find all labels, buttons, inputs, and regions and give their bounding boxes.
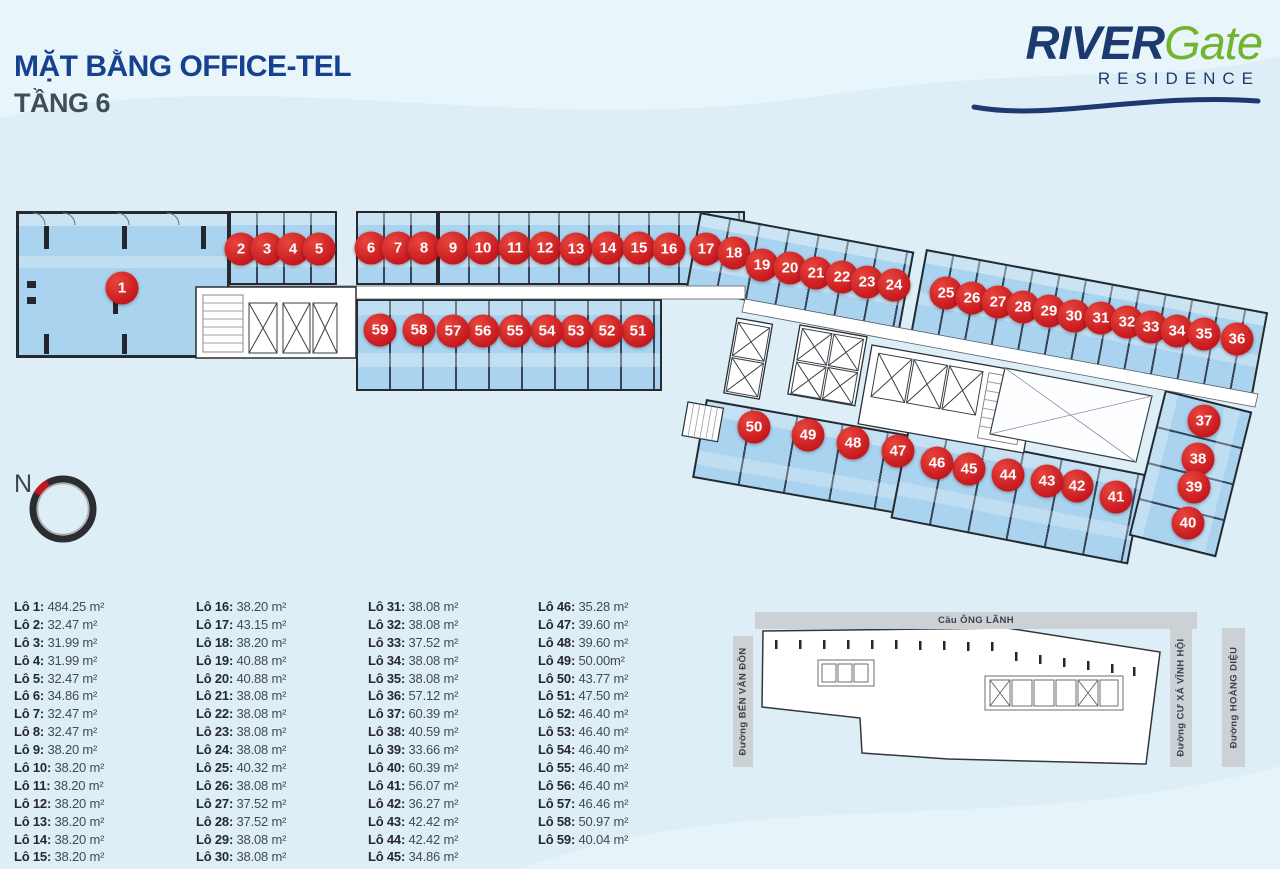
utility-room <box>682 402 723 442</box>
legend-row-lot-32: Lô 32: 38.08 m² <box>368 616 458 634</box>
legend-row-lot-37: Lô 37: 60.39 m² <box>368 705 458 723</box>
compass-north-label: N <box>14 470 32 499</box>
legend-row-lot-59: Lô 59: 40.04 m² <box>538 831 628 849</box>
legend-row-lot-29: Lô 29: 38.08 m² <box>196 831 286 849</box>
legend-column-4: Lô 46: 35.28 m²Lô 47: 39.60 m²Lô 48: 39.… <box>538 598 628 848</box>
lot-marker-59[interactable]: 59 <box>364 314 397 347</box>
lot-marker-45[interactable]: 45 <box>953 453 986 486</box>
legend-row-lot-21: Lô 21: 38.08 m² <box>196 687 286 705</box>
legend-row-lot-34: Lô 34: 38.08 m² <box>368 652 458 670</box>
legend-row-lot-44: Lô 44: 42.42 m² <box>368 831 458 849</box>
legend-row-lot-2: Lô 2: 32.47 m² <box>14 616 104 634</box>
legend-row-lot-50: Lô 50: 43.77 m² <box>538 670 628 688</box>
lot-marker-11[interactable]: 11 <box>499 232 532 265</box>
lot-marker-50[interactable]: 50 <box>738 411 771 444</box>
logo-residence: RESIDENCE <box>892 69 1260 89</box>
road-label: Đường CƯ XÁ VĨNH HỘI <box>1176 638 1187 756</box>
legend-row-lot-30: Lô 30: 38.08 m² <box>196 848 286 866</box>
legend-row-lot-25: Lô 25: 40.32 m² <box>196 759 286 777</box>
legend-row-lot-51: Lô 51: 47.50 m² <box>538 687 628 705</box>
legend-row-lot-53: Lô 53: 46.40 m² <box>538 723 628 741</box>
lot-marker-36[interactable]: 36 <box>1221 323 1254 356</box>
road-label: Đường BẾN VÂN ĐỒN <box>738 647 749 755</box>
legend-row-lot-54: Lô 54: 46.40 m² <box>538 741 628 759</box>
legend-row-lot-16: Lô 16: 38.20 m² <box>196 598 286 616</box>
legend-row-lot-46: Lô 46: 35.28 m² <box>538 598 628 616</box>
legend-row-lot-43: Lô 43: 42.42 m² <box>368 813 458 831</box>
lot-marker-58[interactable]: 58 <box>403 314 436 347</box>
lot-marker-39[interactable]: 39 <box>1178 471 1211 504</box>
legend-row-lot-19: Lô 19: 40.88 m² <box>196 652 286 670</box>
plan-details <box>0 0 1280 869</box>
road-bar-hoang-dieu: Đường HOÀNG DIỆU <box>1222 628 1245 767</box>
lot-marker-54[interactable]: 54 <box>531 315 564 348</box>
legend-row-lot-40: Lô 40: 60.39 m² <box>368 759 458 777</box>
lot-marker-52[interactable]: 52 <box>591 315 624 348</box>
brand-logo: RIVERGate RESIDENCE <box>892 18 1262 117</box>
minimap-footprint <box>762 628 1160 764</box>
lot-marker-56[interactable]: 56 <box>467 315 500 348</box>
legend-row-lot-27: Lô 27: 37.52 m² <box>196 795 286 813</box>
elevator-core-mid <box>724 318 773 399</box>
logo-wordmark: RIVERGate <box>892 18 1262 67</box>
lot-marker-55[interactable]: 55 <box>499 315 532 348</box>
legend-row-lot-13: Lô 13: 38.20 m² <box>14 813 104 831</box>
elevator-core-mid-2 <box>788 325 867 406</box>
lot-marker-48[interactable]: 48 <box>837 427 870 460</box>
lot-marker-12[interactable]: 12 <box>529 232 562 265</box>
compass-north-arrow-icon <box>37 483 48 494</box>
floor-subtitle: TẦNG 6 <box>14 88 351 119</box>
legend-row-lot-10: Lô 10: 38.20 m² <box>14 759 104 777</box>
road-bar-ben-van-don: Đường BẾN VÂN ĐỒN <box>733 636 753 767</box>
page: MẶT BẰNG OFFICE-TEL TẦNG 6 RIVERGate RES… <box>0 0 1280 869</box>
lot-marker-37[interactable]: 37 <box>1188 405 1221 438</box>
lot-marker-46[interactable]: 46 <box>921 447 954 480</box>
lot-marker-16[interactable]: 16 <box>653 233 686 266</box>
lot-marker-13[interactable]: 13 <box>560 233 593 266</box>
lot-marker-14[interactable]: 14 <box>592 232 625 265</box>
legend-row-lot-45: Lô 45: 34.86 m² <box>368 848 458 866</box>
header: MẶT BẰNG OFFICE-TEL TẦNG 6 <box>14 50 351 119</box>
lot-marker-1[interactable]: 1 <box>106 272 139 305</box>
compass <box>33 479 93 539</box>
legend-row-lot-38: Lô 38: 40.59 m² <box>368 723 458 741</box>
road-label: Cầu ÔNG LÃNH <box>938 615 1014 626</box>
legend-column-3: Lô 31: 38.08 m²Lô 32: 38.08 m²Lô 33: 37.… <box>368 598 458 866</box>
lot-marker-40[interactable]: 40 <box>1172 507 1205 540</box>
legend-row-lot-3: Lô 3: 31.99 m² <box>14 634 104 652</box>
legend-row-lot-9: Lô 9: 38.20 m² <box>14 741 104 759</box>
legend-row-lot-15: Lô 15: 38.20 m² <box>14 848 104 866</box>
legend-column-1: Lô 1: 484.25 m²Lô 2: 32.47 m²Lô 3: 31.99… <box>14 598 104 866</box>
road-bar-cu-xa-vinh-hoi: Đường CƯ XÁ VĨNH HỘI <box>1170 628 1192 767</box>
legend-row-lot-35: Lô 35: 38.08 m² <box>368 670 458 688</box>
legend-row-lot-58: Lô 58: 50.97 m² <box>538 813 628 831</box>
legend-row-lot-17: Lô 17: 43.15 m² <box>196 616 286 634</box>
legend-row-lot-33: Lô 33: 37.52 m² <box>368 634 458 652</box>
legend-row-lot-57: Lô 57: 46.46 m² <box>538 795 628 813</box>
stair-elevator-core-left <box>196 287 356 358</box>
logo-river: RIVER <box>1025 16 1164 69</box>
legend-row-lot-52: Lô 52: 46.40 m² <box>538 705 628 723</box>
lot-marker-43[interactable]: 43 <box>1031 465 1064 498</box>
legend-row-lot-23: Lô 23: 38.08 m² <box>196 723 286 741</box>
road-bar-cau-ong-lanh: Cầu ÔNG LÃNH <box>755 612 1197 629</box>
legend-row-lot-14: Lô 14: 38.20 m² <box>14 831 104 849</box>
logo-gate: Gate <box>1164 16 1262 69</box>
legend-row-lot-8: Lô 8: 32.47 m² <box>14 723 104 741</box>
legend-row-lot-39: Lô 39: 33.66 m² <box>368 741 458 759</box>
lot-marker-42[interactable]: 42 <box>1061 470 1094 503</box>
lot-marker-57[interactable]: 57 <box>437 315 470 348</box>
legend-row-lot-55: Lô 55: 46.40 m² <box>538 759 628 777</box>
lot-marker-15[interactable]: 15 <box>623 232 656 265</box>
legend-row-lot-11: Lô 11: 38.20 m² <box>14 777 104 795</box>
lot-marker-47[interactable]: 47 <box>882 435 915 468</box>
legend-row-lot-41: Lô 41: 56.07 m² <box>368 777 458 795</box>
lot-marker-10[interactable]: 10 <box>467 232 500 265</box>
lot-marker-49[interactable]: 49 <box>792 419 825 452</box>
legend-row-lot-31: Lô 31: 38.08 m² <box>368 598 458 616</box>
legend-row-lot-7: Lô 7: 32.47 m² <box>14 705 104 723</box>
logo-wave-icon <box>970 91 1262 117</box>
legend-row-lot-5: Lô 5: 32.47 m² <box>14 670 104 688</box>
legend-row-lot-56: Lô 56: 46.40 m² <box>538 777 628 795</box>
legend-row-lot-22: Lô 22: 38.08 m² <box>196 705 286 723</box>
legend-row-lot-20: Lô 20: 40.88 m² <box>196 670 286 688</box>
lot-marker-35[interactable]: 35 <box>1188 318 1221 351</box>
legend-row-lot-28: Lô 28: 37.52 m² <box>196 813 286 831</box>
legend-row-lot-4: Lô 4: 31.99 m² <box>14 652 104 670</box>
lot-marker-24[interactable]: 24 <box>878 269 911 302</box>
legend-row-lot-42: Lô 42: 36.27 m² <box>368 795 458 813</box>
lot-marker-44[interactable]: 44 <box>992 459 1025 492</box>
legend-row-lot-18: Lô 18: 38.20 m² <box>196 634 286 652</box>
legend-row-lot-36: Lô 36: 57.12 m² <box>368 687 458 705</box>
lot-marker-5[interactable]: 5 <box>303 233 336 266</box>
lot-marker-51[interactable]: 51 <box>622 315 655 348</box>
legend-row-lot-1: Lô 1: 484.25 m² <box>14 598 104 616</box>
legend-row-lot-24: Lô 24: 38.08 m² <box>196 741 286 759</box>
lot-marker-53[interactable]: 53 <box>560 315 593 348</box>
road-label: Đường HOÀNG DIỆU <box>1228 647 1239 749</box>
page-title: MẶT BẰNG OFFICE-TEL <box>14 50 351 84</box>
legend-row-lot-49: Lô 49: 50.00m² <box>538 652 628 670</box>
lot-marker-9[interactable]: 9 <box>437 232 470 265</box>
legend-row-lot-12: Lô 12: 38.20 m² <box>14 795 104 813</box>
legend-row-lot-6: Lô 6: 34.86 m² <box>14 687 104 705</box>
lot-marker-41[interactable]: 41 <box>1100 481 1133 514</box>
legend-column-2: Lô 16: 38.20 m²Lô 17: 43.15 m²Lô 18: 38.… <box>196 598 286 866</box>
legend-row-lot-48: Lô 48: 39.60 m² <box>538 634 628 652</box>
legend-row-lot-26: Lô 26: 38.08 m² <box>196 777 286 795</box>
legend-row-lot-47: Lô 47: 39.60 m² <box>538 616 628 634</box>
